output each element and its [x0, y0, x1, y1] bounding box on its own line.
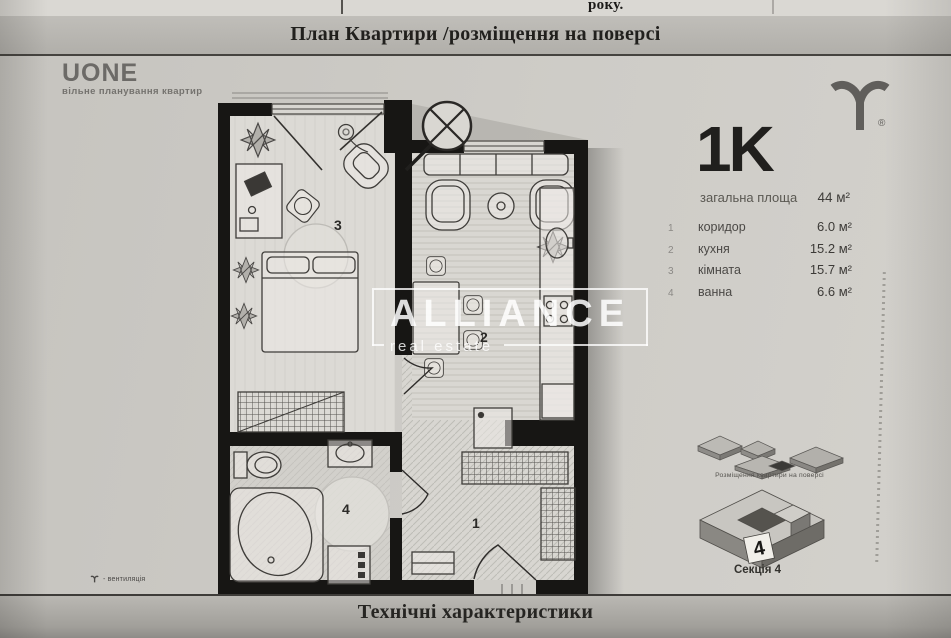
watermark-rule [372, 344, 384, 346]
room-label-corridor: 1 [472, 515, 480, 531]
balcony-bench [424, 154, 568, 175]
total-area-label: загальна площа [700, 190, 797, 205]
table-cell-divider [772, 0, 774, 14]
room-label-bath: 4 [342, 501, 350, 517]
room-area: 6.6 м² [817, 284, 852, 299]
footer-band: Технічні характеристики [0, 594, 951, 638]
header-band: План Квартири /розміщення на поверсі [0, 16, 951, 56]
room-name: ванна [698, 285, 732, 299]
room-number: 4 [668, 288, 698, 299]
fridge [542, 384, 574, 418]
table-row: 2 кухня 15.2 м² [668, 241, 852, 263]
balcony-edge-lines [232, 93, 388, 98]
lounge-chair [426, 180, 470, 230]
room-name: коридор [698, 220, 746, 234]
bed [262, 252, 358, 352]
shoe-bench [412, 552, 454, 574]
desk [236, 164, 282, 238]
footer-title: Технічні характеристики [0, 601, 951, 624]
table-cell-divider [341, 0, 343, 14]
legend-label: - вентиляція [103, 576, 145, 583]
trident-legend-icon [90, 574, 100, 584]
appliance [474, 408, 512, 448]
watermark-rule [504, 344, 648, 346]
placement-caption: Розміщення квартири на поверсі [672, 472, 867, 479]
table-row: 3 кімната 15.7 м² [668, 262, 852, 284]
photographed-floor-plan-page: року. План Квартири /розміщення на повер… [0, 0, 951, 638]
room-number: 3 [668, 266, 698, 277]
section-icon: 4 [690, 484, 840, 574]
table-row: 4 ванна 6.6 м² [668, 284, 852, 306]
wardrobe [238, 392, 344, 432]
bath-rug [315, 477, 389, 551]
dining-chair [427, 257, 446, 276]
developer-name: UONE [62, 61, 202, 85]
top-cell-text: року. [588, 0, 624, 14]
bathroom-sink [328, 440, 372, 467]
room-area: 15.2 м² [810, 241, 852, 256]
ventilation-legend: - вентиляція [90, 574, 145, 584]
rooms-table: 1 коридор 6.0 м² 2 кухня 15.2 м² 3 кімна… [668, 219, 852, 305]
toilet [234, 452, 281, 478]
wardrobe [462, 452, 568, 484]
watermark-title: ALLIANCE [374, 293, 646, 336]
room-area: 6.0 м² [817, 219, 852, 234]
watermark-subtitle: real estate [390, 338, 493, 355]
registered-mark: ® [878, 118, 886, 129]
room-label-room: 3 [334, 217, 342, 233]
wardrobe [541, 488, 575, 560]
total-area-row: загальна площа 44 м² [700, 190, 850, 205]
room-area: 15.7 м² [810, 262, 852, 277]
washing-machine [328, 546, 370, 584]
coffee-table [488, 193, 514, 219]
floor-placement-diagram [685, 420, 850, 480]
trident-logo-icon: ® [826, 74, 900, 136]
section-caption: Секція 4 [690, 564, 825, 576]
room-number: 1 [668, 223, 698, 234]
total-area-value: 44 м² [817, 190, 850, 205]
bathtub [228, 483, 323, 585]
room-name: кімната [698, 263, 741, 277]
room-number: 2 [668, 245, 698, 256]
developer-tagline: вільне планування квартир [62, 86, 202, 97]
watermark: ALLIANCE real estate [372, 288, 648, 346]
room-name: кухня [698, 242, 730, 256]
page-title: План Квартири /розміщення на поверсі [0, 16, 951, 53]
apartment-type: 1K [696, 112, 772, 186]
table-row: 1 коридор 6.0 м² [668, 219, 852, 241]
developer-logo: UONE вільне планування квартир [62, 61, 202, 97]
